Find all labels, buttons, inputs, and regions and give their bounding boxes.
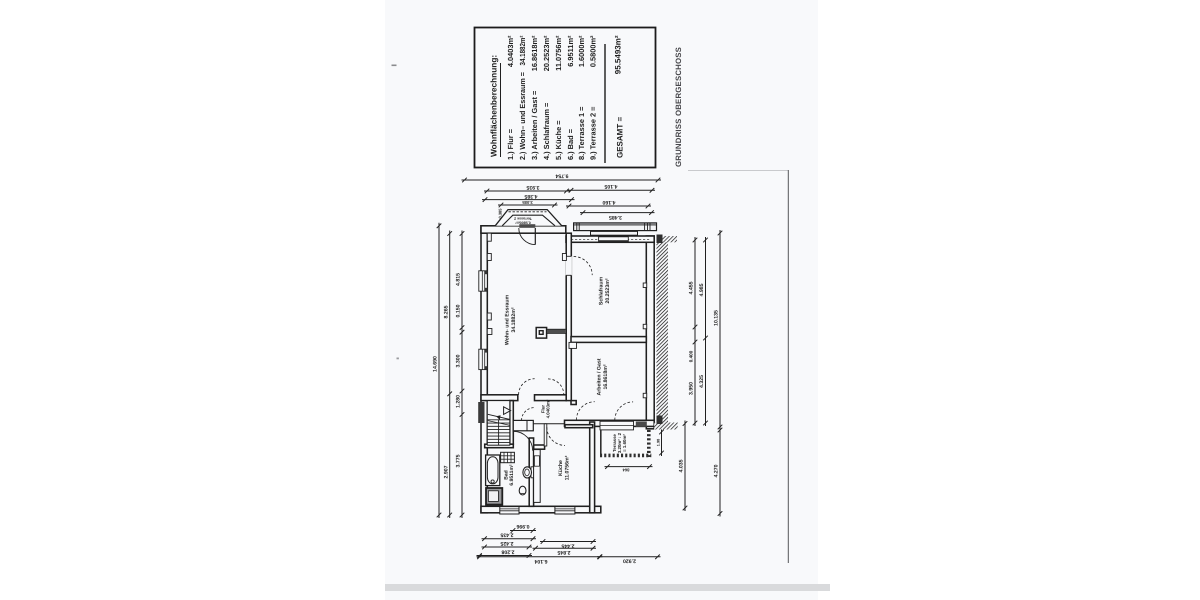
svg-text:864: 864 xyxy=(622,468,630,473)
svg-text:4.) Schlafraum =: 4.) Schlafraum = xyxy=(542,102,551,160)
svg-text:3.950: 3.950 xyxy=(689,382,695,395)
svg-text:1.98: 1.98 xyxy=(657,439,661,446)
svg-text:6.) Bad =: 6.) Bad = xyxy=(566,128,575,160)
svg-text:9.754: 9.754 xyxy=(555,173,568,179)
svg-text:= 1.60m²: = 1.60m² xyxy=(622,434,627,452)
svg-text:Terrasse 2: Terrasse 2 xyxy=(514,217,532,221)
svg-text:2.425: 2.425 xyxy=(500,540,513,546)
svg-text:6.9511m²: 6.9511m² xyxy=(566,35,575,67)
svg-text:6.9511m²: 6.9511m² xyxy=(509,464,515,485)
svg-text:34.1882m²: 34.1882m² xyxy=(518,35,527,65)
svg-text:4.270: 4.270 xyxy=(714,464,720,477)
svg-text:0.400: 0.400 xyxy=(689,350,694,362)
svg-text:2.907: 2.907 xyxy=(443,465,449,478)
svg-text:1.280: 1.280 xyxy=(456,395,462,408)
svg-text:2.435: 2.435 xyxy=(500,531,513,537)
svg-text:3.085: 3.085 xyxy=(522,200,533,205)
svg-text:1.) Flur =: 1.) Flur = xyxy=(506,128,515,160)
svg-text:9.) Terrasse 2 =: 9.) Terrasse 2 = xyxy=(589,106,598,160)
svg-text:4.455: 4.455 xyxy=(689,281,695,294)
svg-text:16.8618m²: 16.8618m² xyxy=(530,35,539,71)
svg-text:4.0403m²: 4.0403m² xyxy=(546,399,551,418)
svg-text:8.) Terrasse 1 =: 8.) Terrasse 1 = xyxy=(577,106,586,160)
svg-text:14.690: 14.690 xyxy=(433,356,439,372)
svg-text:4.815: 4.815 xyxy=(456,273,462,286)
svg-text:4.105: 4.105 xyxy=(604,183,617,189)
svg-text:0.996: 0.996 xyxy=(516,523,529,529)
svg-text:2.208: 2.208 xyxy=(501,548,514,554)
svg-text:3.300: 3.300 xyxy=(456,354,462,367)
svg-text:10.135: 10.135 xyxy=(714,310,720,326)
svg-text:2.920: 2.920 xyxy=(623,558,636,564)
svg-text:2.) Wohn– und Essraum =: 2.) Wohn– und Essraum = xyxy=(518,71,527,160)
svg-text:3.935: 3.935 xyxy=(526,184,539,190)
svg-text:6.104: 6.104 xyxy=(534,558,547,564)
svg-text:11.0756m²: 11.0756m² xyxy=(554,35,563,71)
svg-text:8.265: 8.265 xyxy=(443,305,449,318)
svg-text:0.150: 0.150 xyxy=(456,304,462,317)
svg-text:3.485: 3.485 xyxy=(609,214,622,220)
svg-text:Schlafraum: Schlafraum xyxy=(598,276,604,305)
svg-text:3.) Arbeiten / Gast =: 3.) Arbeiten / Gast = xyxy=(530,90,539,160)
svg-text:0.5800m²: 0.5800m² xyxy=(589,35,598,67)
svg-text:4.985: 4.985 xyxy=(699,283,705,296)
svg-text:0.5800m²: 0.5800m² xyxy=(515,221,531,225)
svg-text:Küche: Küche xyxy=(558,460,564,476)
svg-text:4.160: 4.160 xyxy=(602,199,615,205)
svg-text:34.1882m²: 34.1882m² xyxy=(511,307,517,332)
svg-text:1.6000m²: 1.6000m² xyxy=(577,35,586,67)
svg-text:16.8618m²: 16.8618m² xyxy=(603,364,609,389)
svg-text:4.035: 4.035 xyxy=(679,459,685,472)
svg-text:Arbeiten / Gast: Arbeiten / Gast xyxy=(596,358,602,395)
svg-text:Wohn- und Essraum: Wohn- und Essraum xyxy=(504,294,510,345)
svg-text:GESAMT =: GESAMT = xyxy=(616,117,625,158)
svg-text:4.385: 4.385 xyxy=(524,193,537,199)
svg-text:20.2523m²: 20.2523m² xyxy=(542,35,551,71)
svg-text:2.445: 2.445 xyxy=(561,542,574,548)
svg-text:GRUNDRISS OBERGESCHOSS: GRUNDRISS OBERGESCHOSS xyxy=(674,47,683,167)
svg-text:20.2523m²: 20.2523m² xyxy=(605,278,611,303)
svg-text:4.325: 4.325 xyxy=(699,375,705,388)
svg-text:2.845: 2.845 xyxy=(557,549,570,555)
svg-text:95.5493m²: 95.5493m² xyxy=(614,35,623,74)
svg-text:5.) Küche =: 5.) Küche = xyxy=(554,120,563,160)
svg-text:3.775: 3.775 xyxy=(456,454,462,467)
svg-text:Wohnflächenberechnung:: Wohnflächenberechnung: xyxy=(489,55,499,157)
svg-text:4.0403m²: 4.0403m² xyxy=(506,35,515,67)
svg-text:11.0756m²: 11.0756m² xyxy=(564,455,570,480)
